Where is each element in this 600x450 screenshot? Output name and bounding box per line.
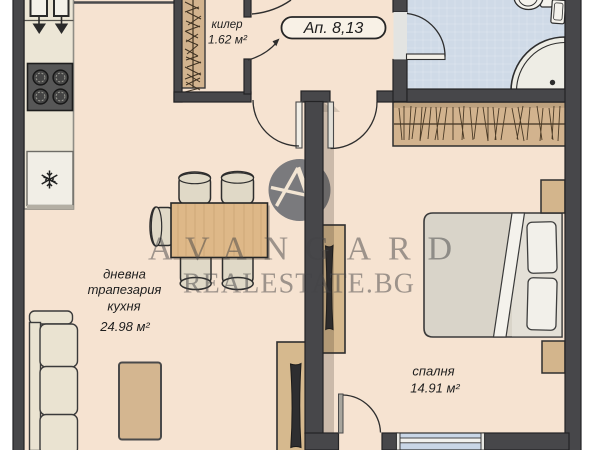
svg-text:1.62 м²: 1.62 м² <box>208 33 248 47</box>
svg-text:кухня: кухня <box>107 299 140 314</box>
svg-text:килер: килер <box>211 19 243 31</box>
svg-text:трапезария: трапезария <box>88 282 162 297</box>
svg-text:дневна: дневна <box>103 267 146 282</box>
svg-text:Ап. 8,13: Ап. 8,13 <box>303 20 364 37</box>
svg-text:AVANGARD: AVANGARD <box>148 231 469 268</box>
svg-text:спалня: спалня <box>412 364 454 379</box>
svg-text:24.98 м²: 24.98 м² <box>99 319 150 334</box>
svg-text:REALESTATE.BG: REALESTATE.BG <box>183 269 415 300</box>
svg-text:14.91 м²: 14.91 м² <box>410 381 460 396</box>
